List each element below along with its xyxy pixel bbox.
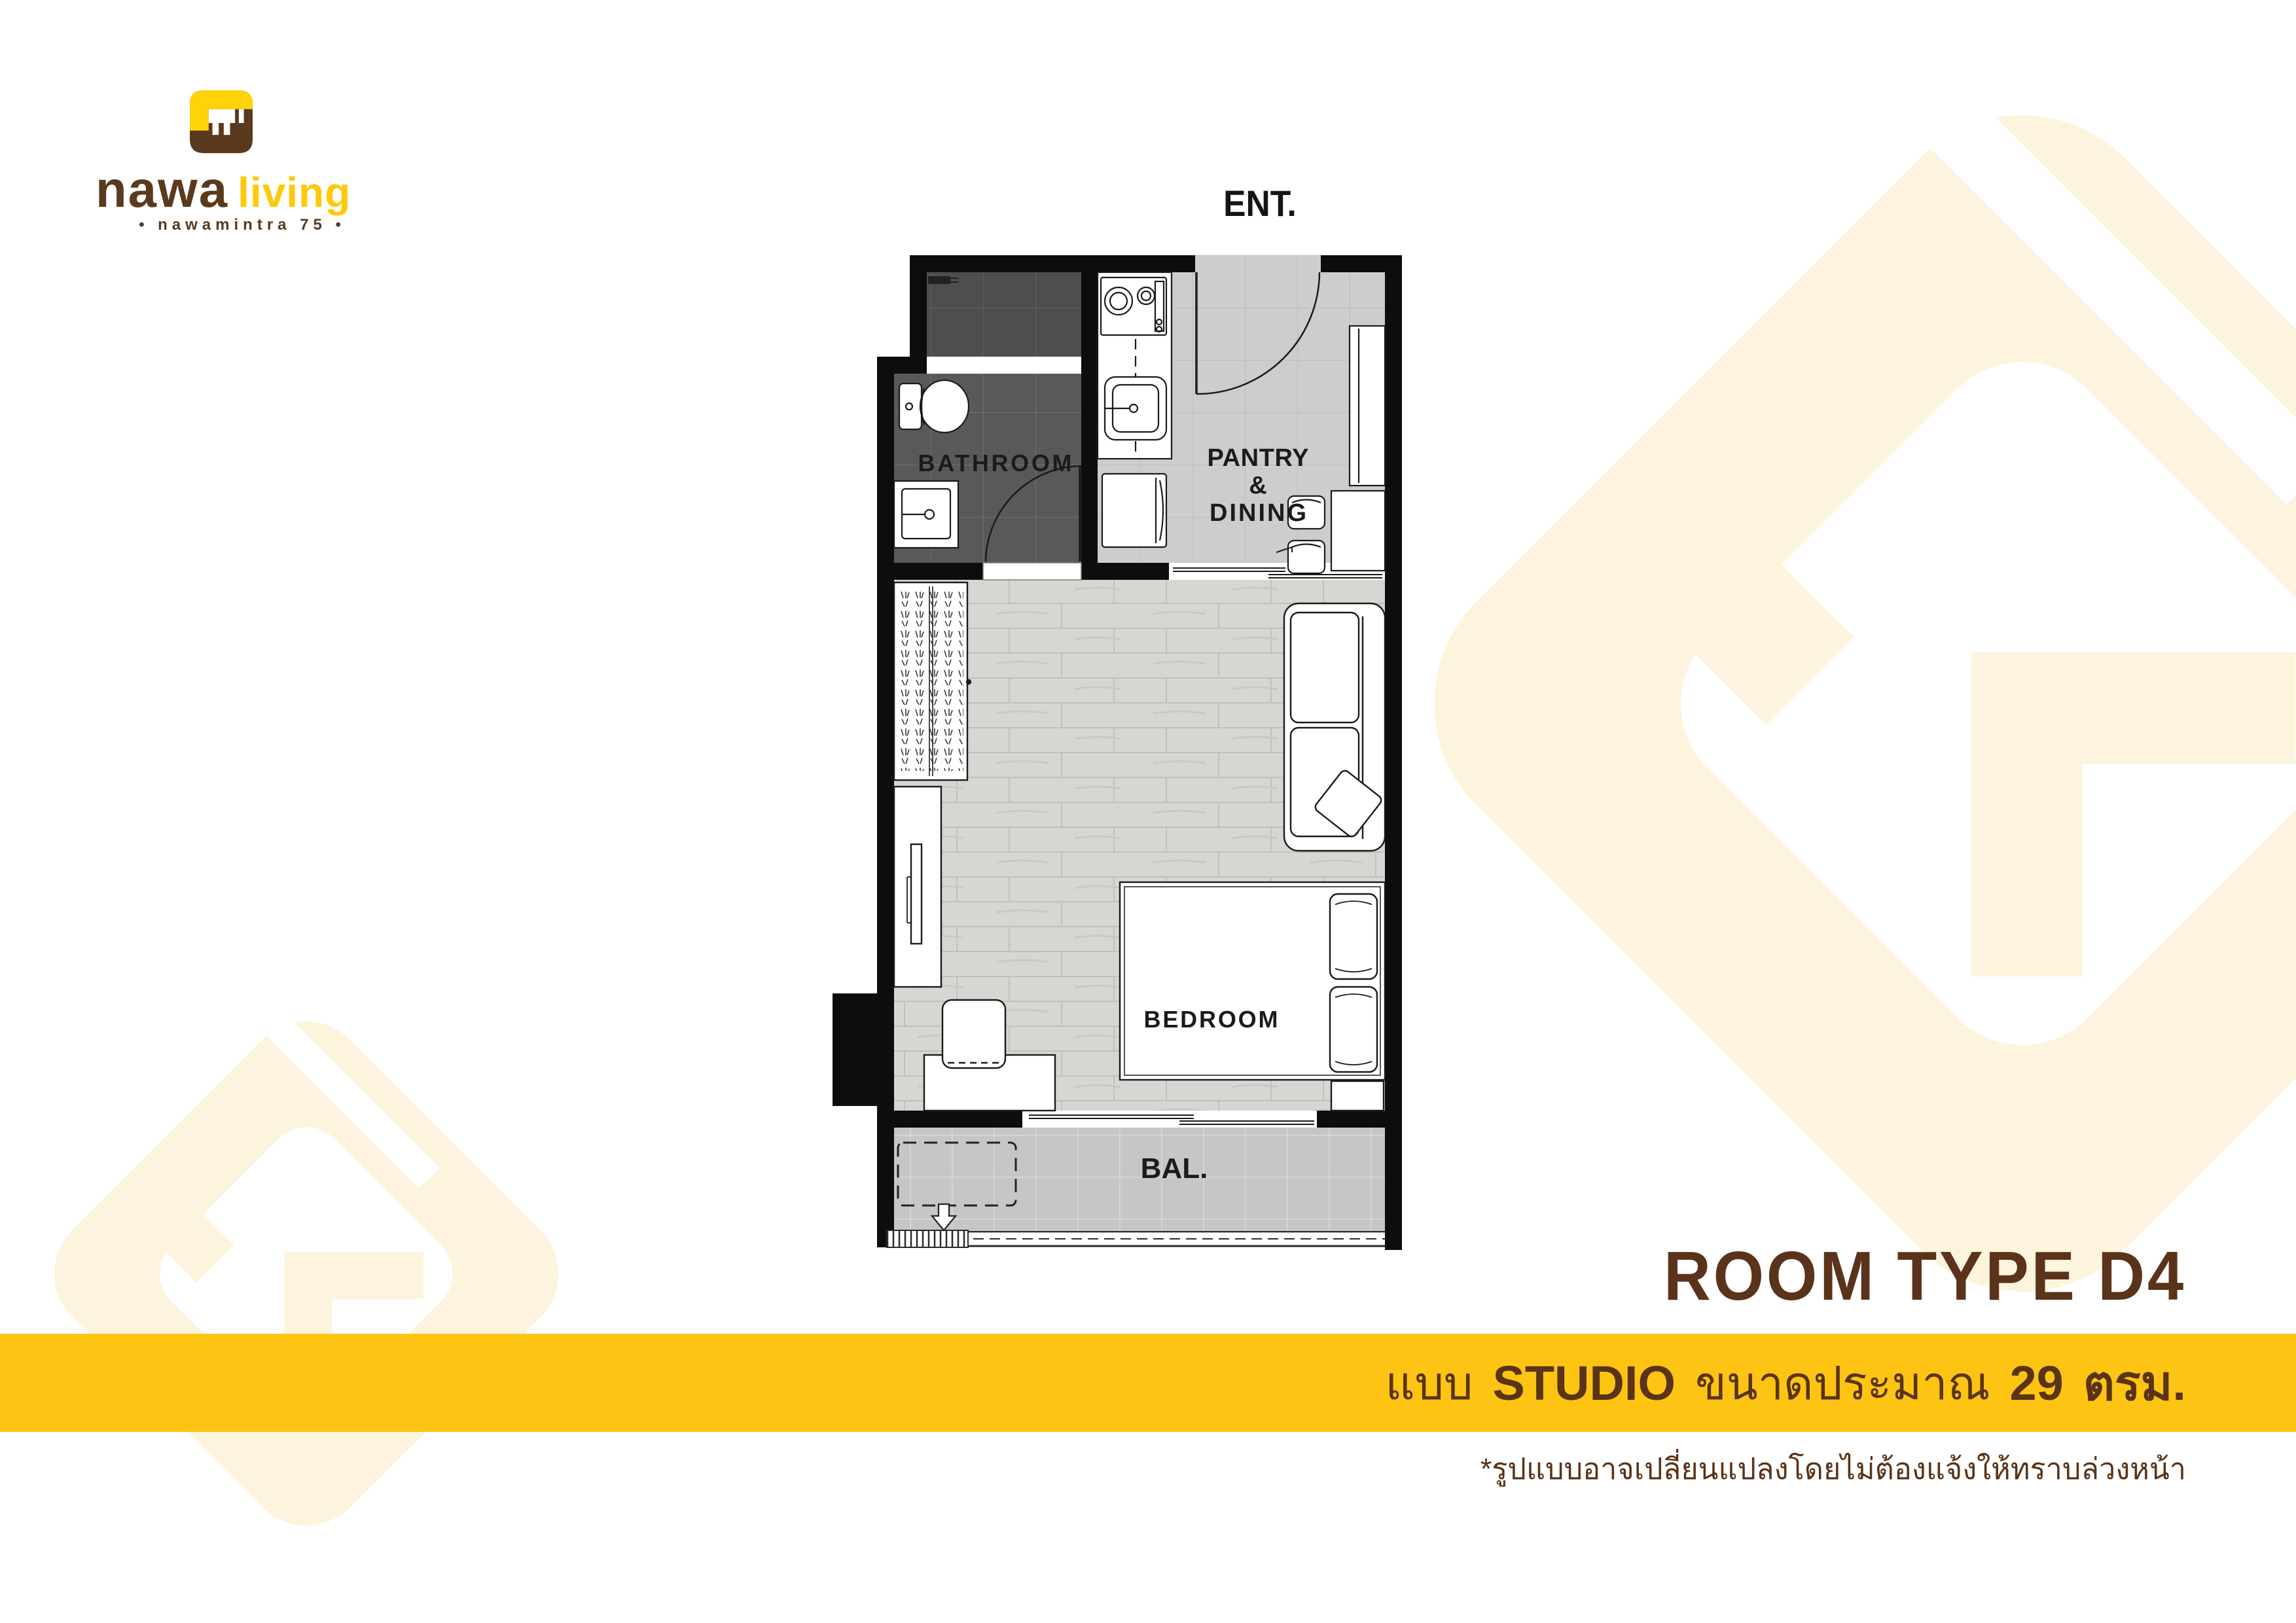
entrance-label: ENT.	[1191, 182, 1329, 224]
wall-left-upper	[910, 255, 927, 374]
kitchen	[1098, 272, 1172, 547]
wall-top-left	[910, 255, 1195, 272]
brand-tagline: • nawamintra 75 •	[98, 216, 386, 234]
pantry-label-line2: &	[1249, 472, 1266, 499]
desk-stool	[942, 1000, 1005, 1068]
stove-icon	[1101, 277, 1166, 335]
wardrobe-handle	[967, 680, 971, 684]
wall-balcony-right	[1317, 1111, 1385, 1128]
bedside-table	[1331, 1081, 1384, 1111]
sofa-cushion-1	[1291, 613, 1359, 722]
floor-plan: BATHROOM PANTRY & DINING BEDROOM BAL.	[826, 255, 1402, 1250]
size-unit: ตรม.	[2083, 1344, 2186, 1421]
toilet-bowl-icon	[920, 380, 969, 433]
motif-bottom-left-icon	[23, 990, 584, 1551]
shoe-cabinet	[1350, 326, 1385, 486]
railing-hatch	[887, 1230, 968, 1247]
bed-pillow-2	[1330, 987, 1377, 1072]
toilet-button	[906, 403, 912, 410]
washer-icon	[1102, 474, 1166, 547]
wall-bathroom-bottom	[894, 563, 983, 580]
wall-pantry-bottom	[1098, 563, 1169, 580]
sink-faucet	[1130, 404, 1138, 412]
brand-suffix: living	[238, 169, 351, 216]
disclaimer-text: *รูปแบบอาจเปลี่ยนแปลงโดยไม่ต้องแจ้งให้ทร…	[1480, 1445, 2186, 1492]
wall-balcony-left	[894, 1111, 1022, 1128]
pantry-label-line3: DINING	[1210, 499, 1306, 527]
wall-kitchen-divider	[1081, 272, 1098, 580]
dining-table	[1331, 491, 1385, 571]
pantry-label-line1: PANTRY	[1208, 444, 1309, 472]
brochure-page: แบบ STUDIO ขนาดประมาณ 29 ตรม. nawaliving…	[0, 0, 2296, 1623]
brand-name: nawa	[96, 160, 228, 218]
nawa-logo-mark-icon	[190, 90, 253, 153]
bathroom-label: BATHROOM	[918, 450, 1072, 476]
room-type-title: ROOM TYPE D4	[1664, 1237, 2186, 1316]
bedroom-label: BEDROOM	[1144, 1006, 1278, 1033]
bathroom-door-threshold	[983, 563, 1081, 580]
type-value: STUDIO	[1492, 1355, 1676, 1411]
balcony-railing	[887, 1230, 1385, 1247]
motif-top-right-icon	[1361, 42, 2296, 1351]
tv-icon	[911, 844, 922, 944]
bed-pillow-1	[1330, 894, 1377, 979]
brand-wordmark: nawaliving	[96, 160, 488, 219]
type-banner: แบบ STUDIO ขนาดประมาณ 29 ตรม.	[0, 1334, 2296, 1432]
wall-left-main	[877, 357, 894, 1247]
wall-right	[1385, 255, 1402, 1250]
balcony-label: BAL.	[1141, 1152, 1208, 1185]
shower-head-icon	[928, 276, 950, 284]
dining-chair-2	[1288, 541, 1325, 573]
type-banner-text: แบบ STUDIO ขนาดประมาณ 29 ตรม.	[1365, 1334, 2186, 1432]
wall-column-block	[833, 993, 894, 1106]
type-prefix: แบบ	[1385, 1347, 1473, 1419]
wardrobe-hangers	[898, 592, 963, 771]
shower-floor-shade	[927, 272, 1081, 357]
size-value: 29	[2010, 1355, 2064, 1411]
entrance-threshold	[1195, 255, 1321, 272]
size-label: ขนาดประมาณ	[1695, 1347, 1990, 1419]
vanity-faucet	[925, 510, 934, 519]
